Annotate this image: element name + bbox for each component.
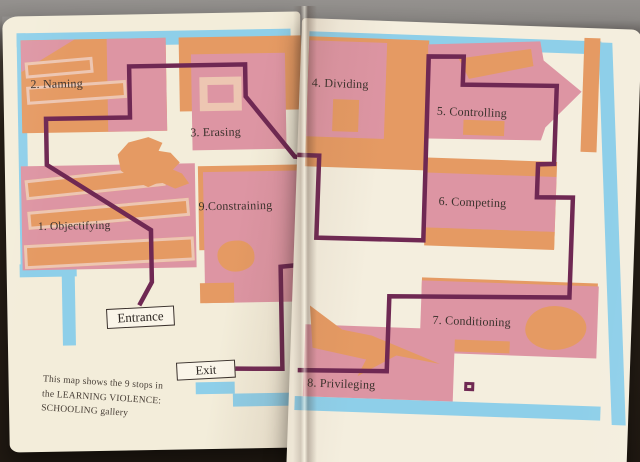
map-caption: This map shows the 9 stops in the LEARNI… bbox=[41, 372, 188, 425]
entrance-label-box: Entrance bbox=[106, 306, 175, 330]
route-path-right bbox=[290, 51, 578, 379]
route-layer-right bbox=[286, 18, 640, 462]
route-path-left-main bbox=[45, 63, 305, 306]
entrance-label: Entrance bbox=[117, 308, 164, 326]
page-right: 4. Dividing 5. Controlling 6. Competing … bbox=[286, 18, 640, 462]
route-marker-dot bbox=[464, 382, 474, 391]
page-left: 1. Objectifying 2. Naming 3. Erasing 9.C… bbox=[2, 11, 308, 452]
exit-label-box: Exit bbox=[176, 360, 236, 381]
booklet-photo: 1. Objectifying 2. Naming 3. Erasing 9.C… bbox=[0, 0, 640, 462]
exit-label: Exit bbox=[195, 362, 217, 378]
caption-line-3: SCHOOLING gallery bbox=[41, 404, 128, 419]
